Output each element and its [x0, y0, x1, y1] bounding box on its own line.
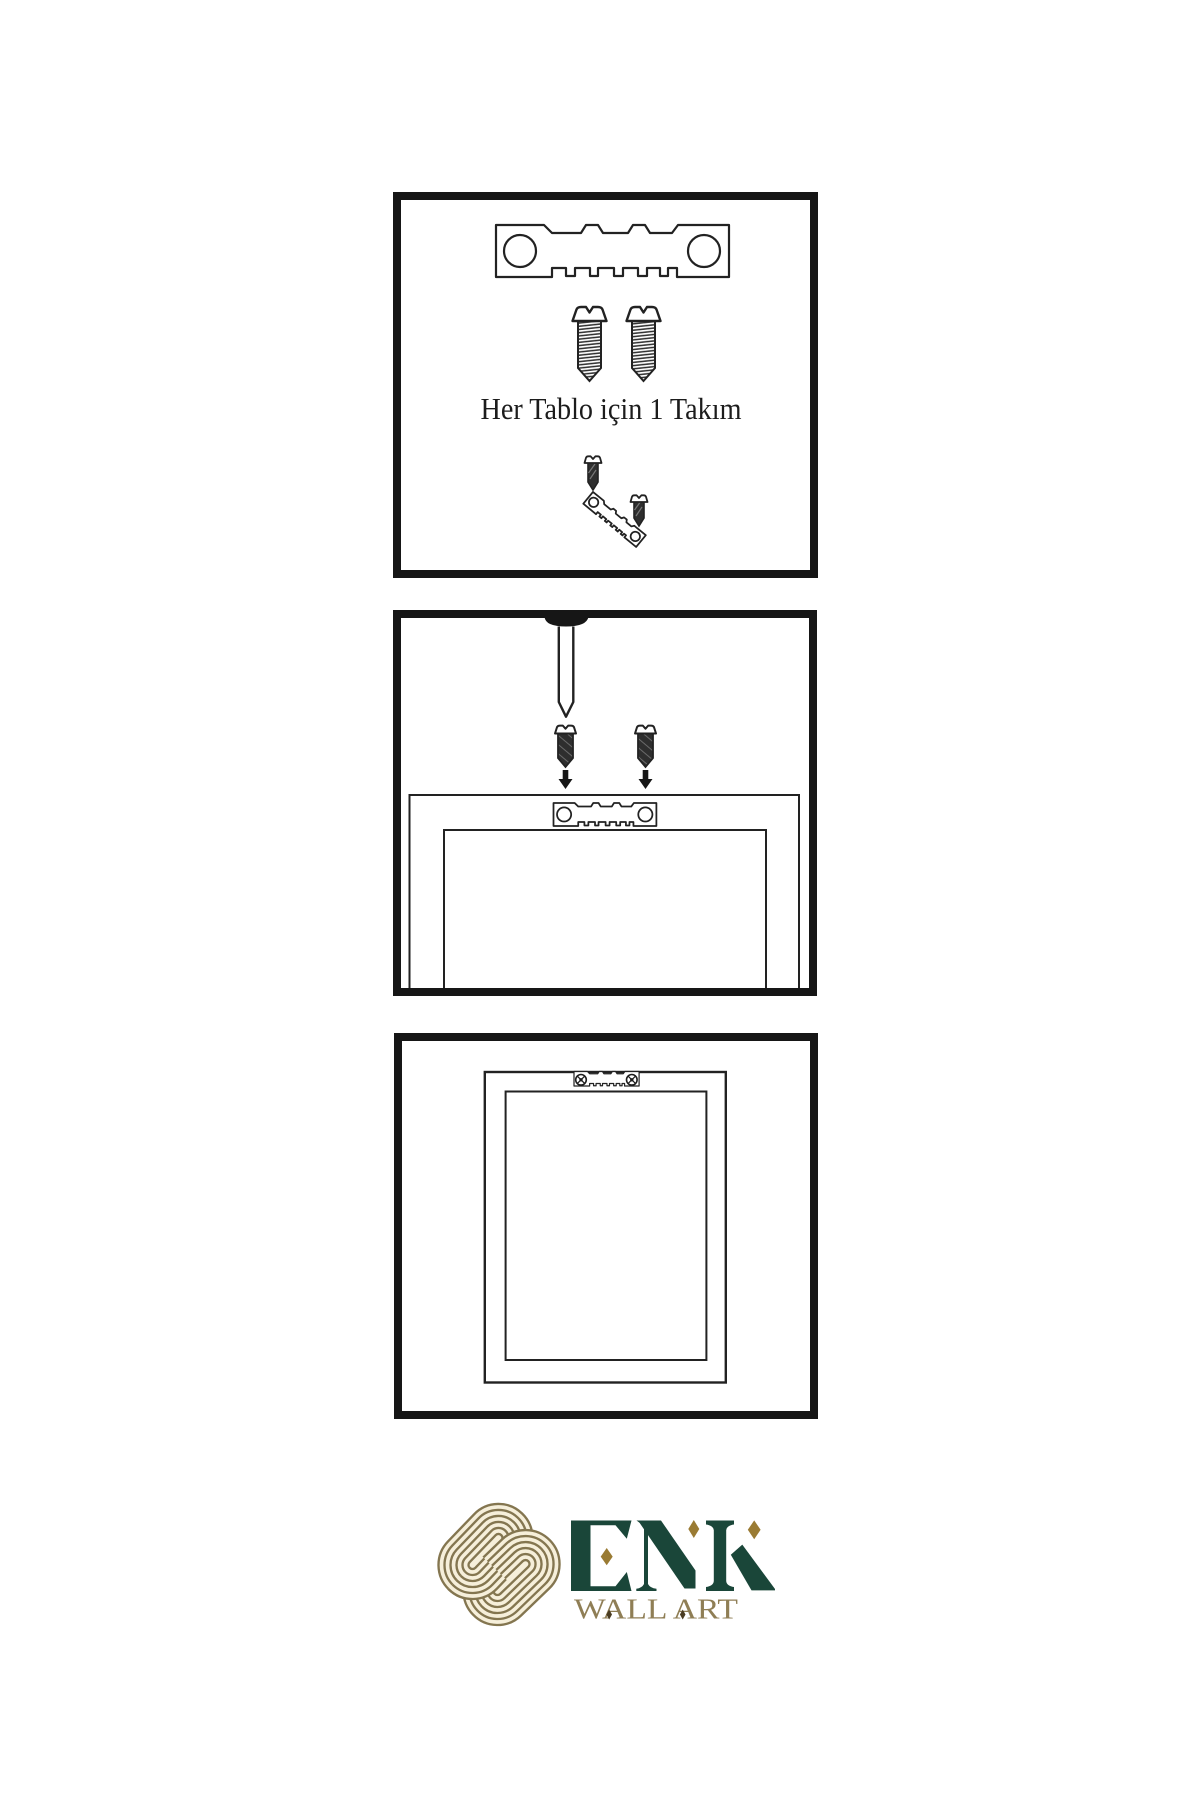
svg-text:WALL ART: WALL ART — [574, 1593, 738, 1625]
svg-text:Her Tablo için 1 Takım: Her Tablo için 1 Takım — [481, 391, 742, 426]
